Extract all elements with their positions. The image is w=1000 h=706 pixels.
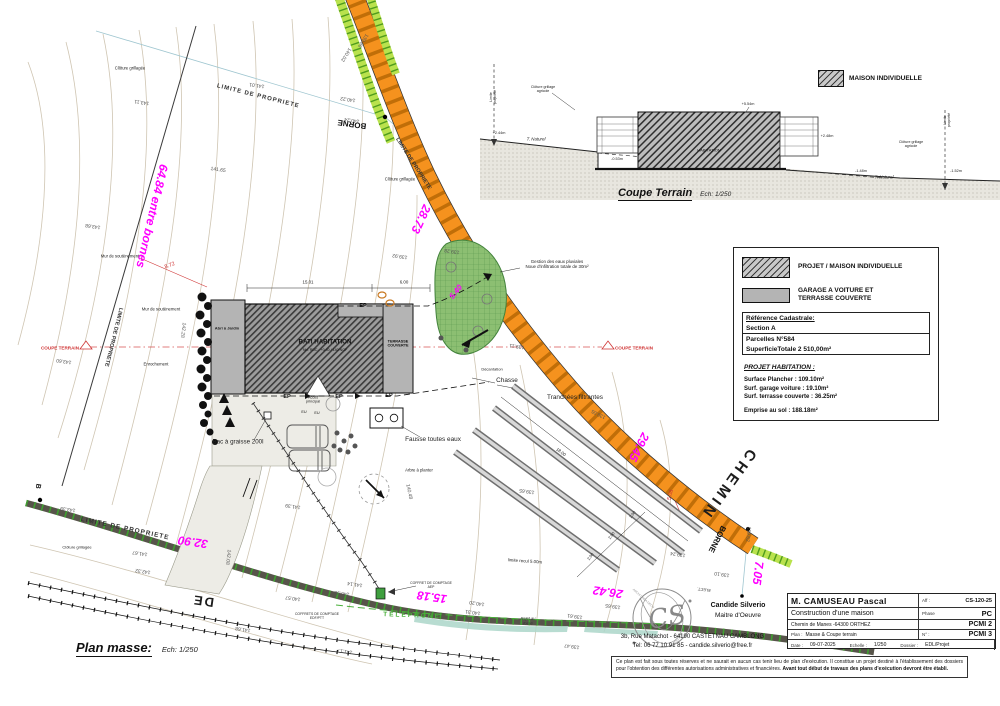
project-hatch-swatch xyxy=(742,257,790,278)
dossier-value: EDL/Projet xyxy=(925,642,949,648)
surface-garage: Surf. garage voiture : 19.10m² xyxy=(744,386,930,392)
coupe-title-scale: Ech: 1/250 xyxy=(700,191,731,198)
legend-garage-row: GARAGE A VOITURE ET TERRASSE COUVERTE xyxy=(742,287,930,303)
plan-masse-scale: Ech: 1/250 xyxy=(162,645,198,654)
coffret-aep-shape xyxy=(376,588,385,599)
plan-masse-label: Plan masse: xyxy=(76,640,152,657)
cadastre-section: Section A xyxy=(743,323,929,333)
cadastre-box: Référence Cadastrale: Section A Parcelle… xyxy=(742,312,930,355)
site-address: Chemin de Manes -64300 ORTHEZ xyxy=(791,622,870,628)
road-verges xyxy=(337,0,791,564)
project-title: Construction d'une maison xyxy=(791,610,874,617)
legend-project-row: PROJET / MAISON INDIVIDUELLE xyxy=(742,257,930,278)
coupe-legend: MAISON INDIVIDUELLE xyxy=(818,70,922,87)
driveway xyxy=(165,393,336,594)
garage-gray-swatch xyxy=(742,288,790,303)
surface-terrasse: Surf. terrasse couverte : 36.25m² xyxy=(744,394,930,400)
cadastre-parcel: Parcelles N°584 xyxy=(743,334,929,344)
pcmi2-value: PCMI 2 xyxy=(969,621,992,628)
cadastre-area: SuperficieTotale 2 510,00m² xyxy=(743,344,929,354)
legend-project-label: PROJET / MAISON INDIVIDUELLE xyxy=(798,263,902,271)
date-label: Date : xyxy=(791,643,803,648)
abri-jardin-shape xyxy=(211,300,245,394)
projet-habitation-title: PROJET HABITATION : xyxy=(744,364,930,371)
phase-label: Phase xyxy=(922,611,935,616)
legend-box: PROJET / MAISON INDIVIDUELLE GARAGE A VO… xyxy=(733,247,939,421)
plan-label: Plan : xyxy=(791,632,803,637)
echelle-value: 1/250 xyxy=(874,642,887,648)
title-block: M. CAMUSEAU Pascal Aff :CS-120-25 Constr… xyxy=(787,593,996,649)
architect-tel: Tel: 06 77 10 91 85 - candide.silverio@f… xyxy=(600,643,785,649)
coupe-terrain-section xyxy=(480,64,1000,200)
maison-hatch-swatch xyxy=(818,70,844,87)
disclaimer-box: Ce plan est fait sous toutes réserves et… xyxy=(611,656,968,678)
phase-value: PC xyxy=(982,609,992,618)
emprise-au-sol: Emprise au sol : 188.18m² xyxy=(744,408,930,414)
road-chemin xyxy=(352,0,753,546)
client-name: M. CAMUSEAU Pascal xyxy=(791,596,887,606)
surface-plancher: Surface Plancher : 109.10m² xyxy=(744,377,930,383)
maison-legend-label: MAISON INDIVIDUELLE xyxy=(849,75,922,82)
plan-value: Masse & Coupe terrain xyxy=(806,632,857,638)
legend-garage-label: GARAGE A VOITURE ET TERRASSE COUVERTE xyxy=(798,287,873,303)
building-complex xyxy=(211,284,430,396)
aff-value: CS-120-25 xyxy=(965,598,992,604)
echelle-label: Echelle : xyxy=(850,643,867,648)
architect-name: Candide Silverio xyxy=(688,602,788,609)
cadastre-title: Référence Cadastrale: xyxy=(743,313,929,323)
disclaimer-bold: Avant tout début de travaux des plans d'… xyxy=(783,666,948,672)
site-plan-page: CS 64.84 entre bornes28.7329.4532.9015.1… xyxy=(0,0,1000,706)
date-value: 09-07-2025 xyxy=(810,642,836,648)
terrasse-couverte-shape xyxy=(383,304,413,393)
plan-masse-title: Plan masse: Ech: 1/250 xyxy=(76,640,198,657)
dossier-label: Dossier : xyxy=(900,643,918,648)
coupe-title: Coupe Terrain Ech: 1/250 xyxy=(618,187,731,201)
num-value: PCMI 3 xyxy=(969,631,992,638)
aff-label: Aff : xyxy=(922,598,930,603)
architect-address: 3b, Rue Matachot - 64190 CASTETNAU CAMBL… xyxy=(600,634,785,640)
coupe-title-label: Coupe Terrain xyxy=(618,187,692,201)
architect-role: Maitre d'Oeuvre xyxy=(688,612,788,619)
num-label: N° : xyxy=(922,632,930,637)
